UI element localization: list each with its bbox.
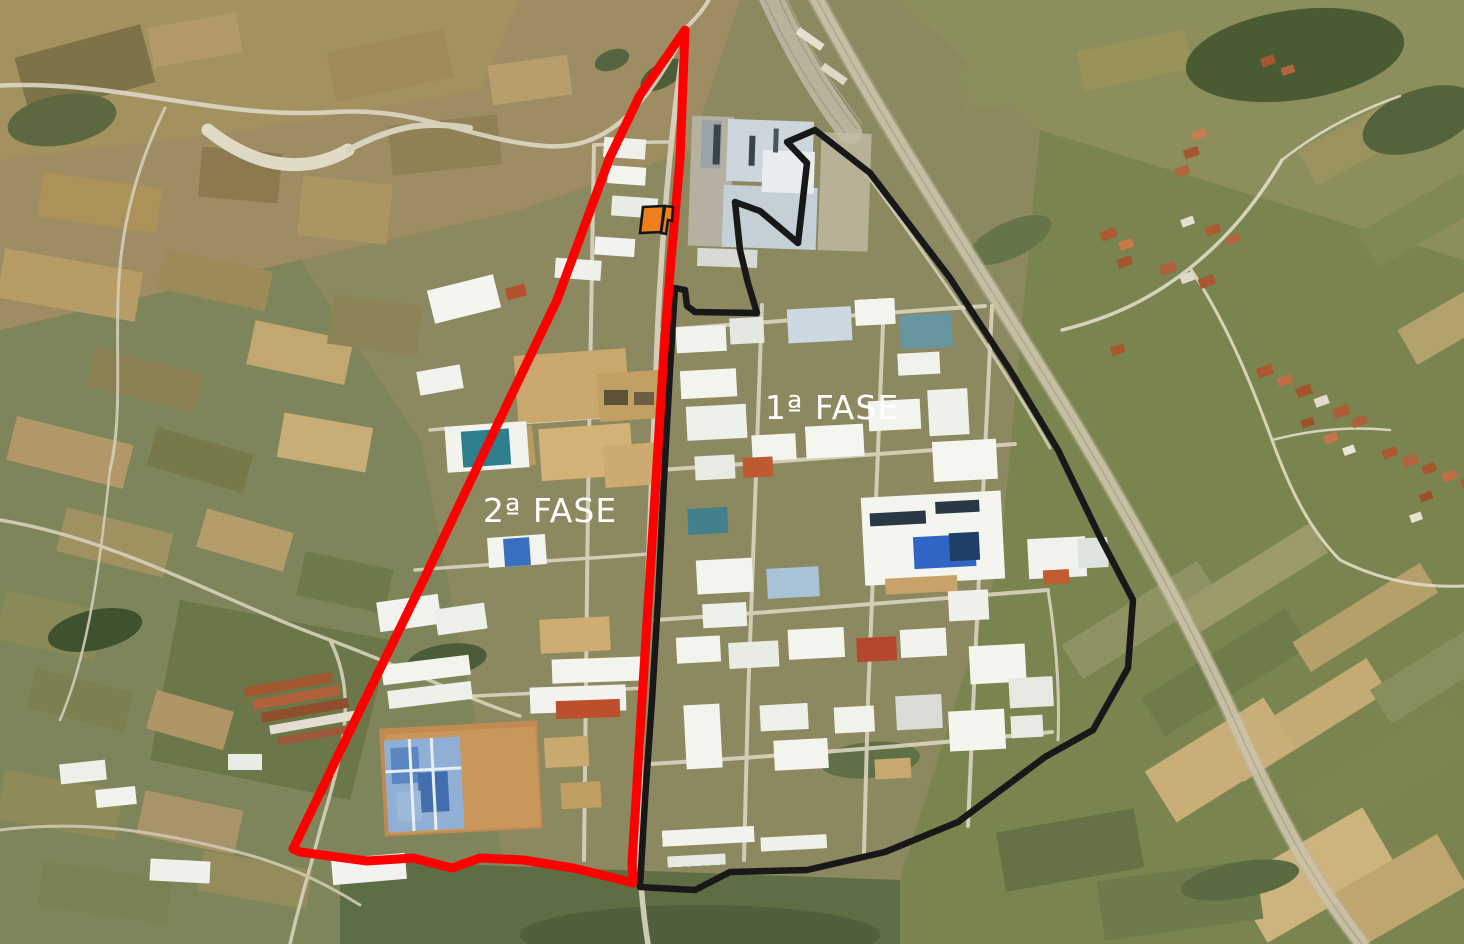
- phase1-label: 1ª FASE: [765, 388, 899, 427]
- phase2-label: 2ª FASE: [483, 491, 617, 530]
- parcel-marker: [640, 206, 673, 234]
- phase1-outline: [640, 130, 1133, 890]
- annotation-overlay: 1ª FASE 2ª FASE: [0, 0, 1464, 944]
- aerial-map-figure: 1ª FASE 2ª FASE: [0, 0, 1464, 944]
- phase2-outline: [293, 30, 685, 883]
